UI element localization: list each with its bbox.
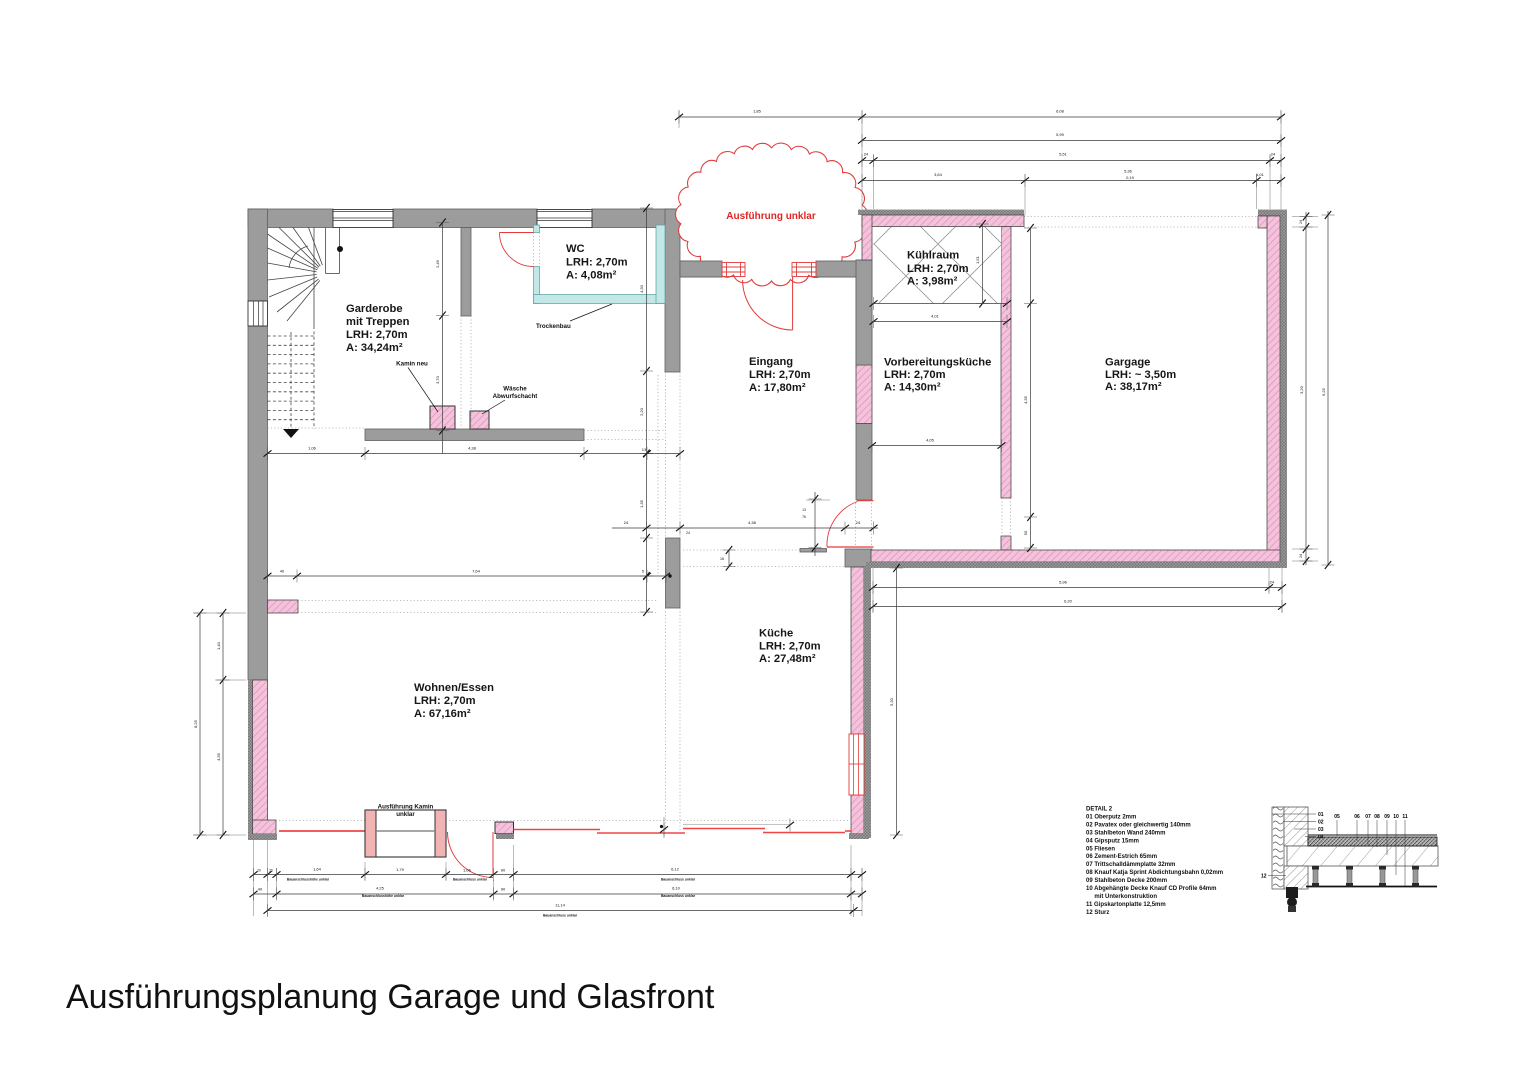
svg-text:Abwurfschacht: Abwurfschacht bbox=[493, 393, 538, 400]
svg-text:2,49: 2,49 bbox=[435, 259, 440, 268]
svg-text:Wäsche: Wäsche bbox=[503, 386, 527, 393]
svg-text:3,20: 3,20 bbox=[1299, 385, 1304, 394]
svg-text:Garderobe: Garderobe bbox=[346, 303, 403, 315]
svg-text:76: 76 bbox=[802, 515, 806, 519]
svg-text:24: 24 bbox=[624, 520, 629, 525]
svg-text:LRH: 2,70m: LRH: 2,70m bbox=[346, 329, 408, 341]
svg-text:1,51: 1,51 bbox=[975, 255, 980, 264]
svg-text:04 Gipsputz 15mm: 04 Gipsputz 15mm bbox=[1086, 838, 1139, 844]
svg-text:6,20: 6,20 bbox=[1064, 599, 1073, 604]
svg-text:20: 20 bbox=[257, 869, 261, 873]
svg-text:26: 26 bbox=[269, 869, 273, 873]
svg-text:Bauanschluss unklar: Bauanschluss unklar bbox=[543, 914, 578, 918]
svg-text:08: 08 bbox=[1374, 814, 1380, 820]
svg-text:40: 40 bbox=[258, 887, 263, 892]
svg-text:12: 12 bbox=[1261, 874, 1267, 880]
svg-text:3,64: 3,64 bbox=[934, 172, 943, 177]
svg-text:24: 24 bbox=[1270, 580, 1275, 585]
svg-text:24: 24 bbox=[1299, 554, 1303, 558]
svg-text:0,19: 0,19 bbox=[1126, 175, 1135, 180]
svg-text:4,38: 4,38 bbox=[748, 520, 757, 525]
svg-text:16: 16 bbox=[720, 557, 724, 561]
svg-text:DETAIL 2: DETAIL 2 bbox=[1086, 807, 1113, 813]
svg-text:09: 09 bbox=[1384, 814, 1390, 820]
svg-text:LRH: 2,70m: LRH: 2,70m bbox=[749, 369, 811, 381]
svg-text:A: 34,24m²: A: 34,24m² bbox=[346, 342, 403, 354]
svg-text:4,01: 4,01 bbox=[931, 314, 940, 319]
svg-text:A: 67,16m²: A: 67,16m² bbox=[414, 708, 471, 720]
svg-text:24: 24 bbox=[856, 520, 861, 525]
svg-text:Ausführung unklar: Ausführung unklar bbox=[726, 211, 816, 222]
svg-text:3,70: 3,70 bbox=[435, 375, 440, 384]
svg-text:07 Trittschalldämmplatte 32mm: 07 Trittschalldämmplatte 32mm bbox=[1086, 862, 1175, 868]
svg-text:A: 4,08m²: A: 4,08m² bbox=[566, 270, 617, 282]
svg-text:Bauanschlusshöhe unklar: Bauanschlusshöhe unklar bbox=[287, 878, 330, 882]
svg-text:11 Gipskartonplatte 12,5mm: 11 Gipskartonplatte 12,5mm bbox=[1086, 902, 1166, 908]
svg-text:Vorbereitungsküche: Vorbereitungsküche bbox=[884, 357, 991, 369]
svg-text:Kühlraum: Kühlraum bbox=[907, 250, 959, 262]
svg-text:06 Zement-Estrich 65mm: 06 Zement-Estrich 65mm bbox=[1086, 854, 1157, 860]
svg-text:1,64: 1,64 bbox=[313, 867, 322, 872]
svg-text:1,85: 1,85 bbox=[753, 109, 762, 114]
svg-text:01: 01 bbox=[1318, 812, 1324, 818]
svg-text:4,38: 4,38 bbox=[468, 446, 477, 451]
svg-text:01 Oberputz 2mm: 01 Oberputz 2mm bbox=[1086, 815, 1136, 821]
svg-text:mit Treppen: mit Treppen bbox=[346, 316, 410, 328]
svg-text:10 Abgehängte Decke Knauf CD P: 10 Abgehängte Decke Knauf CD Profile 64m… bbox=[1086, 886, 1216, 892]
svg-text:08 Knauf Katja Sprint Abdichtu: 08 Knauf Katja Sprint Abdichtungsbahn 0,… bbox=[1086, 870, 1223, 876]
svg-text:mit Unterkonstruktion: mit Unterkonstruktion bbox=[1086, 894, 1157, 900]
svg-text:50: 50 bbox=[1023, 530, 1028, 535]
svg-text:12 Sturz: 12 Sturz bbox=[1086, 910, 1109, 916]
svg-text:Trockenbau: Trockenbau bbox=[536, 323, 571, 330]
svg-text:07: 07 bbox=[1365, 814, 1371, 820]
svg-text:6,08: 6,08 bbox=[1056, 109, 1065, 114]
svg-text:Eingang: Eingang bbox=[749, 356, 793, 368]
svg-text:A: 3,98m²: A: 3,98m² bbox=[907, 276, 958, 288]
svg-text:2,20: 2,20 bbox=[639, 407, 644, 416]
svg-text:05 Fliesen: 05 Fliesen bbox=[1086, 846, 1115, 852]
svg-text:4,30: 4,30 bbox=[639, 284, 644, 293]
svg-text:24: 24 bbox=[686, 531, 690, 535]
svg-text:8,25: 8,25 bbox=[193, 719, 198, 728]
svg-text:05: 05 bbox=[1334, 814, 1340, 820]
svg-text:Küche: Küche bbox=[759, 628, 793, 640]
svg-text:04: 04 bbox=[1318, 835, 1324, 841]
svg-text:6,12: 6,12 bbox=[671, 867, 680, 872]
svg-text:LRH: 2,70m: LRH: 2,70m bbox=[884, 369, 946, 381]
svg-text:1,40: 1,40 bbox=[216, 641, 221, 650]
svg-text:5,51: 5,51 bbox=[1059, 152, 1068, 157]
svg-text:LRH: 2,70m: LRH: 2,70m bbox=[566, 257, 628, 269]
svg-text:A: 38,17m²: A: 38,17m² bbox=[1105, 381, 1162, 393]
svg-text:LRH: 2,70m: LRH: 2,70m bbox=[759, 641, 821, 653]
svg-text:4,35: 4,35 bbox=[1023, 395, 1028, 404]
svg-text:4,05: 4,05 bbox=[926, 438, 935, 443]
svg-text:5,36: 5,36 bbox=[1124, 169, 1133, 174]
svg-text:Wohnen/Essen: Wohnen/Essen bbox=[414, 682, 494, 694]
svg-text:40: 40 bbox=[280, 569, 285, 574]
svg-text:5,30: 5,30 bbox=[889, 697, 894, 706]
svg-text:06: 06 bbox=[1354, 814, 1360, 820]
svg-text:4,35: 4,35 bbox=[216, 752, 221, 761]
svg-text:WC: WC bbox=[566, 243, 585, 255]
svg-text:90: 90 bbox=[501, 887, 506, 892]
svg-text:4,25: 4,25 bbox=[376, 886, 385, 891]
svg-text:11,14: 11,14 bbox=[555, 903, 565, 908]
svg-text:24: 24 bbox=[864, 152, 869, 157]
svg-text:1,06: 1,06 bbox=[308, 446, 317, 451]
svg-text:5,96: 5,96 bbox=[1059, 580, 1068, 585]
svg-text:Bauanschluss unklar: Bauanschluss unklar bbox=[453, 878, 488, 882]
svg-text:unklar: unklar bbox=[396, 811, 415, 818]
svg-text:13: 13 bbox=[802, 508, 806, 512]
svg-text:LRH: 2,70m: LRH: 2,70m bbox=[414, 695, 476, 707]
svg-text:Kamin neu: Kamin neu bbox=[396, 361, 428, 368]
svg-text:LRH: 2,70m: LRH: 2,70m bbox=[907, 263, 969, 275]
svg-text:1,35: 1,35 bbox=[639, 499, 644, 508]
svg-text:90: 90 bbox=[501, 868, 506, 873]
svg-text:7,64: 7,64 bbox=[472, 569, 481, 574]
svg-text:09 Stahlbeton Decke 200mm: 09 Stahlbeton Decke 200mm bbox=[1086, 878, 1167, 884]
svg-text:02: 02 bbox=[1318, 820, 1324, 826]
svg-text:A: 14,30m²: A: 14,30m² bbox=[884, 382, 941, 394]
svg-text:A: 17,80m²: A: 17,80m² bbox=[749, 382, 806, 394]
svg-text:11: 11 bbox=[1402, 814, 1408, 820]
svg-text:03 Stahlbeton Wand 240mm: 03 Stahlbeton Wand 240mm bbox=[1086, 830, 1165, 836]
svg-text:24: 24 bbox=[1299, 220, 1303, 224]
svg-text:Bauanschluss unklar: Bauanschluss unklar bbox=[661, 878, 696, 882]
svg-text:1,01: 1,01 bbox=[1256, 172, 1265, 177]
svg-text:6,10: 6,10 bbox=[672, 886, 681, 891]
svg-text:13: 13 bbox=[642, 447, 647, 452]
svg-text:02 Pavatex oder gleichwertig 1: 02 Pavatex oder gleichwertig 140mm bbox=[1086, 822, 1191, 828]
svg-text:10: 10 bbox=[1393, 814, 1399, 820]
svg-text:6,25: 6,25 bbox=[1321, 387, 1326, 396]
svg-text:A: 27,48m²: A: 27,48m² bbox=[759, 653, 816, 665]
svg-text:Gargage: Gargage bbox=[1105, 357, 1150, 369]
svg-text:03: 03 bbox=[1318, 827, 1324, 833]
svg-text:24: 24 bbox=[1271, 152, 1276, 157]
svg-text:Ausführungsplanung Garage und: Ausführungsplanung Garage und Glasfront bbox=[66, 978, 715, 1016]
svg-text:Ausführung Kamin: Ausführung Kamin bbox=[378, 804, 434, 811]
svg-text:1,06: 1,06 bbox=[463, 868, 472, 873]
svg-text:Bauanschlusshöhe unklar: Bauanschlusshöhe unklar bbox=[362, 894, 405, 898]
svg-text:Bauanschluss unklar: Bauanschluss unklar bbox=[661, 894, 696, 898]
svg-text:5,99: 5,99 bbox=[1056, 132, 1065, 137]
svg-text:1,79: 1,79 bbox=[396, 867, 405, 872]
svg-text:LRH: ~ 3,50m: LRH: ~ 3,50m bbox=[1105, 369, 1176, 381]
